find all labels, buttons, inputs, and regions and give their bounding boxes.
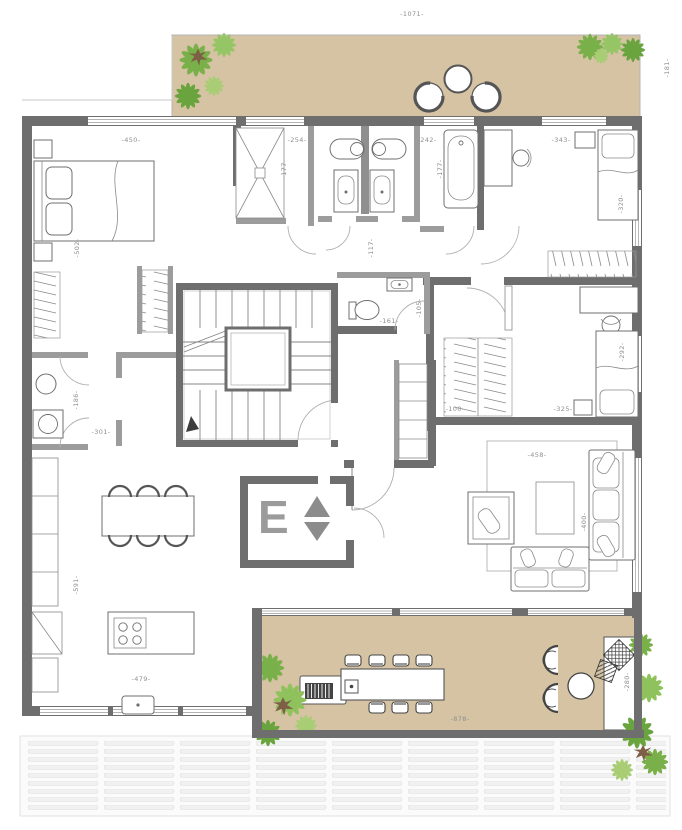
- loveseat: [511, 547, 589, 591]
- kitchen-counter: [32, 658, 58, 692]
- dim-corridor: -117-: [367, 238, 375, 257]
- shower-drain: [255, 168, 265, 178]
- window: [88, 117, 236, 125]
- laundry-basket: [36, 374, 56, 394]
- desk-chair: [513, 150, 529, 166]
- seat-cushion: [515, 570, 548, 587]
- side-table: [568, 673, 594, 699]
- nightstand: [34, 243, 52, 261]
- door-leaf: [505, 286, 512, 330]
- hob: [114, 618, 146, 648]
- utility-room: [33, 374, 63, 438]
- door-arc: [60, 418, 89, 447]
- pillow: [46, 167, 72, 199]
- window: [400, 609, 512, 615]
- chair: [137, 535, 159, 546]
- pillow: [602, 134, 634, 158]
- dim-terrace-side: -181-: [663, 58, 671, 77]
- floor-plan-drawing: [0, 0, 682, 830]
- door-arc: [298, 400, 338, 440]
- dim-hall: -100-: [445, 405, 464, 413]
- window: [424, 117, 474, 125]
- dim-kitchen-depth: -591-: [72, 575, 80, 594]
- bbq-unit: [300, 676, 346, 704]
- wardrobe: [34, 272, 60, 338]
- toilet: [330, 139, 364, 159]
- door-arc: [481, 226, 519, 264]
- dim-master-depth: -502-: [73, 238, 81, 257]
- dim-kitchen-width: -479-: [131, 675, 150, 683]
- nightstand: [574, 400, 592, 415]
- dim-shower-depth: -177-: [280, 159, 288, 178]
- door-arc: [288, 226, 316, 254]
- elevator-letter: E: [258, 494, 289, 540]
- door-arc: [60, 356, 89, 385]
- dim-living-rug-width: -458-: [527, 451, 546, 459]
- dim-bedroom2-width: -343-: [551, 136, 570, 144]
- shower-room: [236, 128, 284, 218]
- door-arc: [467, 288, 509, 330]
- door-arc: [352, 468, 394, 510]
- round-table: [445, 66, 472, 93]
- dim-master-width: -450-: [121, 136, 140, 144]
- roof-edge: [22, 36, 172, 100]
- seat-cushion: [552, 570, 585, 587]
- top-terrace: [22, 33, 645, 118]
- living-room: [468, 441, 635, 591]
- coffee-table: [536, 482, 574, 534]
- desk: [484, 130, 512, 186]
- dim-small-wc-depth: -105-: [415, 298, 423, 317]
- dim-daybed: -280-: [623, 672, 631, 691]
- down-triangle-icon: [304, 522, 330, 541]
- seat-cushion: [593, 490, 619, 520]
- dim-top-width: -1071-: [400, 10, 424, 18]
- dim-utility-depth: -186-: [72, 390, 80, 409]
- door-arc: [354, 508, 384, 538]
- bedroom-2: [484, 130, 638, 277]
- dim-living-rug-depth: -400-: [580, 512, 588, 531]
- small-wc: [349, 278, 412, 320]
- hall-closet: [399, 364, 427, 458]
- dim-bath-width: -242-: [417, 136, 436, 144]
- chair: [137, 486, 159, 497]
- dim-utility-width: -301-: [91, 428, 110, 436]
- stair-direction-arrow: [186, 416, 199, 432]
- dim-small-wc-width: -161-: [379, 317, 398, 325]
- dining-set: [102, 486, 194, 546]
- door-arc: [326, 226, 350, 250]
- window: [542, 117, 606, 125]
- terrace-floor: [172, 35, 640, 118]
- kitchen: [32, 458, 194, 714]
- chair: [109, 535, 131, 546]
- dim-bath-depth: -177-: [436, 159, 444, 178]
- window: [528, 609, 624, 615]
- chair: [165, 486, 187, 497]
- chair: [165, 535, 187, 546]
- window: [246, 117, 304, 125]
- bedroom-3: [444, 287, 638, 417]
- pillow: [46, 203, 72, 235]
- nightstand: [575, 132, 595, 148]
- up-triangle-icon: [304, 496, 330, 517]
- dim-bedroom3-bed: -292-: [618, 342, 626, 361]
- dim-bedroom3-width: -325-: [553, 405, 572, 413]
- wardrobe: [142, 270, 168, 332]
- door-arc: [446, 226, 474, 254]
- chair: [109, 486, 131, 497]
- toilet: [372, 139, 406, 159]
- stair-landing: [226, 328, 290, 390]
- kitchen-counter: [32, 458, 58, 606]
- outdoor-dining-table: [341, 669, 444, 700]
- desk: [580, 287, 638, 313]
- floor-plan: -1071- -181- -450- -502- -254- -177- -24…: [0, 0, 682, 830]
- staircase: [176, 283, 338, 447]
- window: [262, 609, 392, 615]
- dim-shower-width: -254-: [287, 136, 306, 144]
- wardrobe: [548, 251, 636, 277]
- nightstand: [34, 140, 52, 158]
- deck: [20, 736, 670, 816]
- bathroom: [444, 130, 478, 208]
- master-bedroom: [34, 140, 168, 338]
- dining-table: [102, 496, 194, 536]
- dim-bedroom2-bed: -320-: [617, 194, 625, 213]
- dim-terrace-width: -878-: [450, 715, 469, 723]
- sofa: [589, 450, 635, 560]
- toilet: [355, 301, 379, 320]
- pillow: [600, 390, 634, 414]
